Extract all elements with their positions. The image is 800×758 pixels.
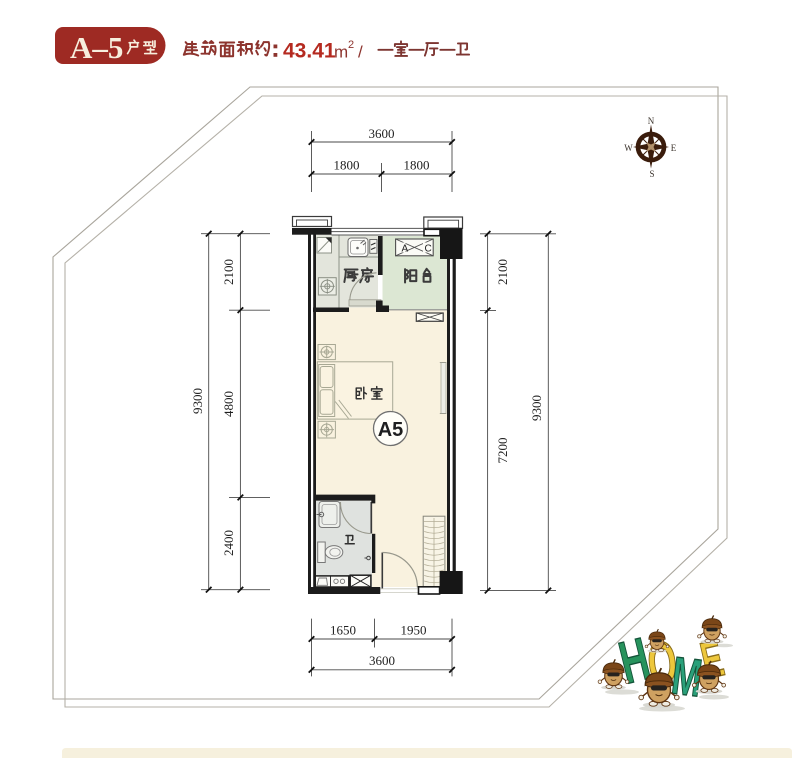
svg-text:C: C: [425, 244, 432, 255]
svg-text:/: /: [358, 43, 363, 62]
svg-text:2400: 2400: [221, 530, 236, 556]
svg-text:N: N: [648, 116, 655, 126]
svg-text:2100: 2100: [495, 259, 510, 285]
svg-text:9300: 9300: [529, 395, 544, 421]
svg-text:m: m: [334, 43, 348, 62]
svg-text:W: W: [624, 143, 633, 153]
svg-text:1950: 1950: [401, 623, 427, 638]
svg-text:9300: 9300: [190, 388, 205, 414]
svg-text:3600: 3600: [369, 653, 395, 668]
svg-text:3600: 3600: [369, 126, 395, 141]
svg-text:2: 2: [348, 39, 354, 51]
svg-text:1650: 1650: [330, 623, 356, 638]
svg-text:7200: 7200: [495, 438, 510, 464]
svg-text:A–5: A–5: [70, 30, 123, 65]
svg-text:1800: 1800: [404, 158, 430, 173]
svg-text:A: A: [402, 244, 409, 255]
svg-text:4800: 4800: [221, 391, 236, 417]
svg-text:S: S: [649, 169, 654, 179]
svg-text:A5: A5: [378, 419, 404, 441]
svg-text:E: E: [671, 143, 677, 153]
svg-text:43.41: 43.41: [283, 40, 336, 63]
svg-text:1800: 1800: [334, 158, 360, 173]
svg-text:2100: 2100: [221, 259, 236, 285]
